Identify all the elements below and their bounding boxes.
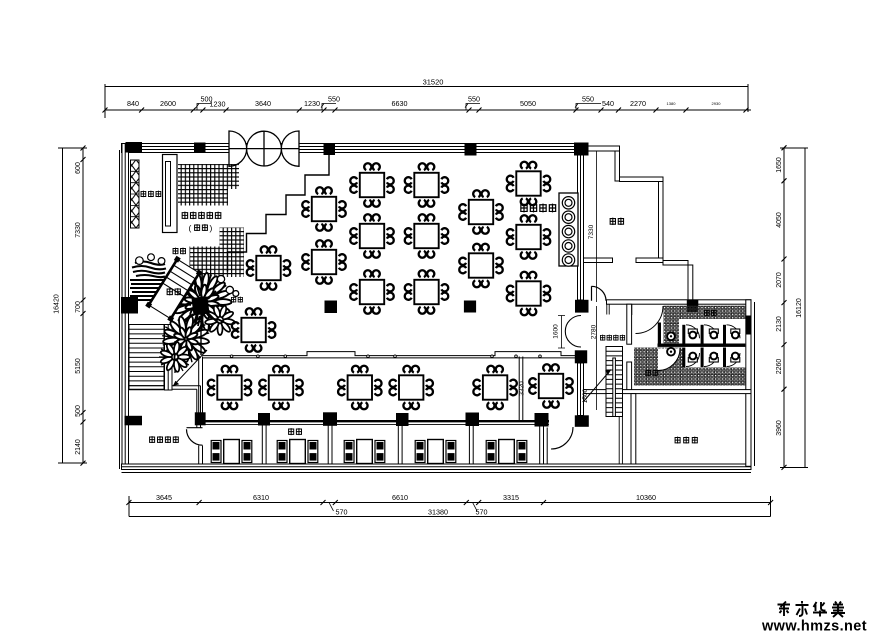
svg-text:570: 570 (336, 508, 348, 517)
svg-text:31520: 31520 (423, 78, 444, 87)
svg-text:16120: 16120 (796, 298, 803, 318)
svg-text:2930: 2930 (712, 101, 722, 106)
svg-text:3640: 3640 (255, 99, 271, 108)
svg-text:5050: 5050 (520, 99, 536, 108)
svg-text:6630: 6630 (392, 99, 408, 108)
svg-text:550: 550 (328, 95, 340, 104)
svg-text:600: 600 (75, 162, 82, 174)
svg-text:5150: 5150 (75, 358, 82, 374)
svg-text:3645: 3645 (156, 493, 172, 502)
svg-text:1380: 1380 (667, 101, 677, 106)
svg-text:3315: 3315 (503, 493, 519, 502)
svg-text:(: ( (189, 223, 192, 233)
svg-text:1500: 1500 (582, 388, 589, 403)
svg-text:1230: 1230 (304, 99, 320, 108)
svg-text:10360: 10360 (636, 493, 656, 502)
svg-text:700: 700 (75, 301, 82, 313)
svg-text:16420: 16420 (54, 294, 61, 314)
svg-text:7330: 7330 (75, 222, 82, 238)
svg-text:2780: 2780 (591, 324, 598, 339)
svg-text:6310: 6310 (253, 493, 269, 502)
svg-text:840: 840 (127, 99, 139, 108)
svg-text:2600: 2600 (160, 99, 176, 108)
svg-text:2130: 2130 (776, 316, 783, 332)
svg-text:2270: 2270 (630, 99, 646, 108)
svg-text:): ) (210, 223, 213, 233)
svg-text:2070: 2070 (776, 272, 783, 288)
svg-text:6610: 6610 (392, 493, 408, 502)
svg-text:500: 500 (75, 405, 82, 417)
svg-text:3960: 3960 (776, 420, 783, 436)
svg-text:1230: 1230 (210, 100, 226, 109)
svg-text:550: 550 (582, 95, 594, 104)
svg-text:570: 570 (476, 508, 488, 517)
svg-text:7330: 7330 (588, 224, 595, 239)
svg-text:4050: 4050 (776, 212, 783, 228)
svg-text:2140: 2140 (75, 439, 82, 455)
svg-text:1600: 1600 (553, 324, 560, 339)
svg-text:550: 550 (468, 95, 480, 104)
svg-text:540: 540 (602, 99, 614, 108)
svg-text:2260: 2260 (776, 359, 783, 375)
svg-text:3320: 3320 (519, 381, 526, 396)
svg-text:31380: 31380 (428, 508, 448, 517)
svg-text:www.hmzs.net: www.hmzs.net (761, 619, 867, 635)
svg-text:1650: 1650 (776, 157, 783, 173)
